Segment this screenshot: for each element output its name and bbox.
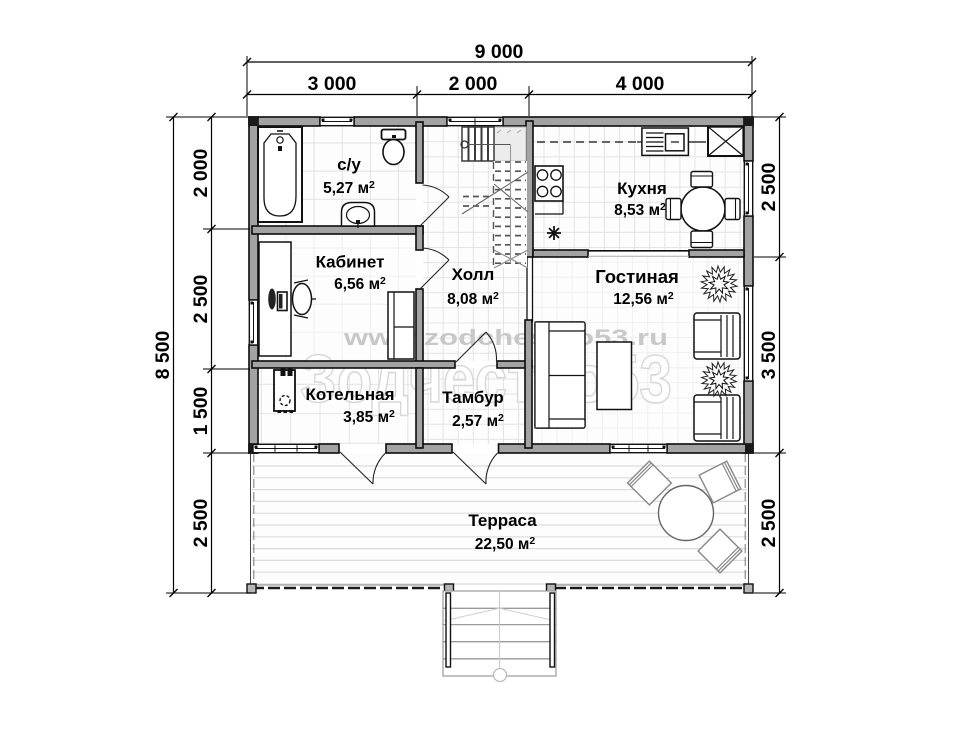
svg-text:Кухня: Кухня (617, 179, 667, 198)
svg-text:3 500: 3 500 (758, 330, 780, 379)
svg-text:Котельная: Котельная (305, 385, 394, 404)
svg-text:2,57 м2: 2,57 м2 (452, 412, 504, 430)
svg-text:12,56 м2: 12,56 м2 (613, 290, 674, 308)
svg-text:2 000: 2 000 (190, 148, 212, 197)
svg-text:2 500: 2 500 (758, 162, 780, 211)
svg-text:4 000: 4 000 (616, 73, 665, 95)
svg-text:Холл: Холл (452, 265, 495, 284)
svg-text:Кабинет: Кабинет (316, 253, 385, 272)
svg-text:3 000: 3 000 (308, 73, 357, 95)
svg-text:2 500: 2 500 (190, 498, 212, 547)
svg-text:3,85 м2: 3,85 м2 (343, 408, 395, 426)
svg-text:22,50 м2: 22,50 м2 (475, 535, 536, 553)
svg-text:6,56 м2: 6,56 м2 (334, 275, 386, 293)
svg-text:8,53 м2: 8,53 м2 (614, 201, 666, 219)
svg-text:2 000: 2 000 (449, 73, 498, 95)
svg-text:1 500: 1 500 (190, 386, 212, 435)
svg-text:2 500: 2 500 (758, 498, 780, 547)
svg-text:8 500: 8 500 (152, 330, 174, 379)
svg-text:2 500: 2 500 (190, 274, 212, 323)
svg-text:9 000: 9 000 (475, 41, 524, 63)
svg-text:Гостиная: Гостиная (595, 266, 679, 287)
svg-text:5,27 м2: 5,27 м2 (323, 179, 375, 197)
svg-text:Терраса: Терраса (468, 511, 537, 530)
svg-text:Тамбур: Тамбур (442, 388, 504, 407)
svg-text:8,08 м2: 8,08 м2 (447, 290, 499, 308)
svg-text:с/у: с/у (337, 155, 361, 174)
